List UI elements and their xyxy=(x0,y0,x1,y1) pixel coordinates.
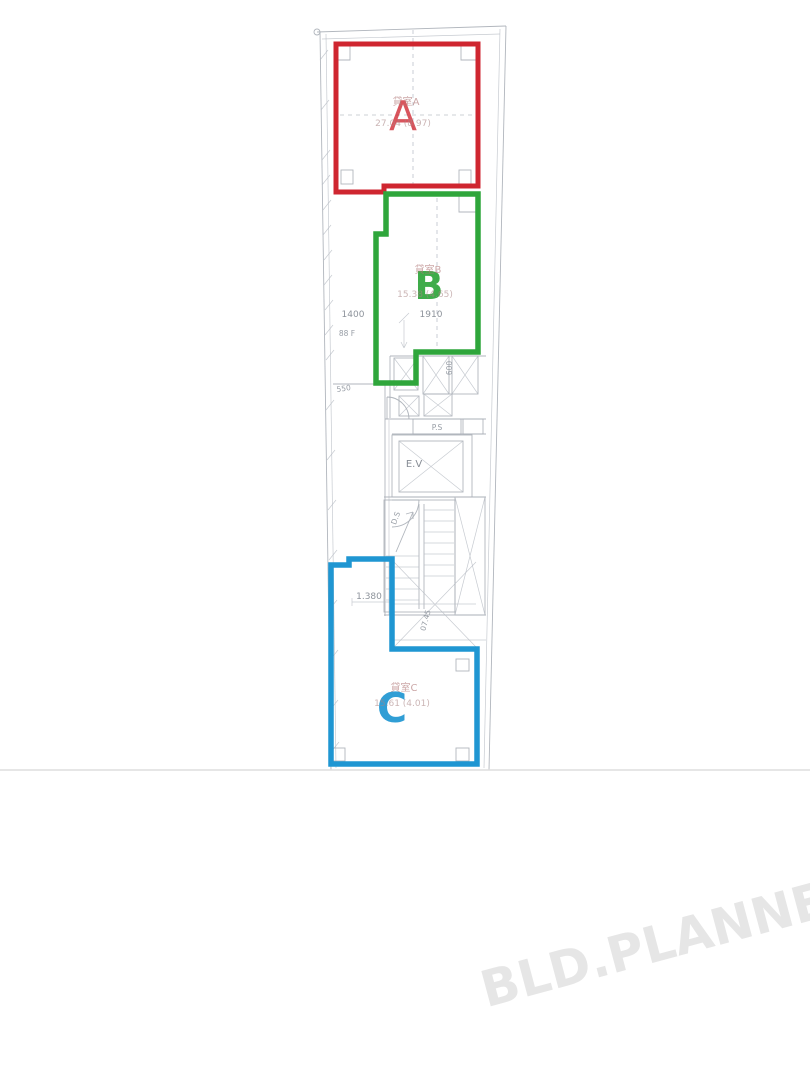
dimension-marks xyxy=(352,313,409,606)
zone-a-labels: A 貸室A 27.04 (8.97) xyxy=(375,92,431,140)
dim-label-600: 600 xyxy=(445,361,454,376)
zone-b-name-label: 貸室B xyxy=(415,263,442,276)
dim-label-550: 550 xyxy=(336,383,352,394)
zone-b-labels: B 貸室B 15.38 (4.65) xyxy=(397,263,453,308)
elevator-shaft xyxy=(392,435,472,497)
zone-a-area-label: 27.04 (8.97) xyxy=(375,119,431,129)
zone-c-labels: C 貸室C 15.61 (4.01) xyxy=(374,681,430,732)
zone-c-area-label: 15.61 (4.01) xyxy=(374,699,430,709)
pipe-shaft-label: P.S xyxy=(432,423,443,432)
dim-label-1910: 1910 xyxy=(420,310,443,320)
dim-label-1400: 1400 xyxy=(342,310,365,320)
elevator-label: E.V xyxy=(406,459,422,470)
dim-label-1380: 1.380 xyxy=(356,592,382,602)
duct-shaft-label: D.S xyxy=(389,510,402,525)
zone-c-name-label: 貸室C xyxy=(391,681,418,694)
zone-b-area-label: 15.38 (4.65) xyxy=(397,290,453,300)
screenshot-canvas: 1400 1910 88 F 550 600 P.S E.V D.S 07.45… xyxy=(0,0,810,1080)
floor-note-label: 88 F xyxy=(339,329,355,338)
zone-a-name-label: 貸室A xyxy=(393,95,420,108)
